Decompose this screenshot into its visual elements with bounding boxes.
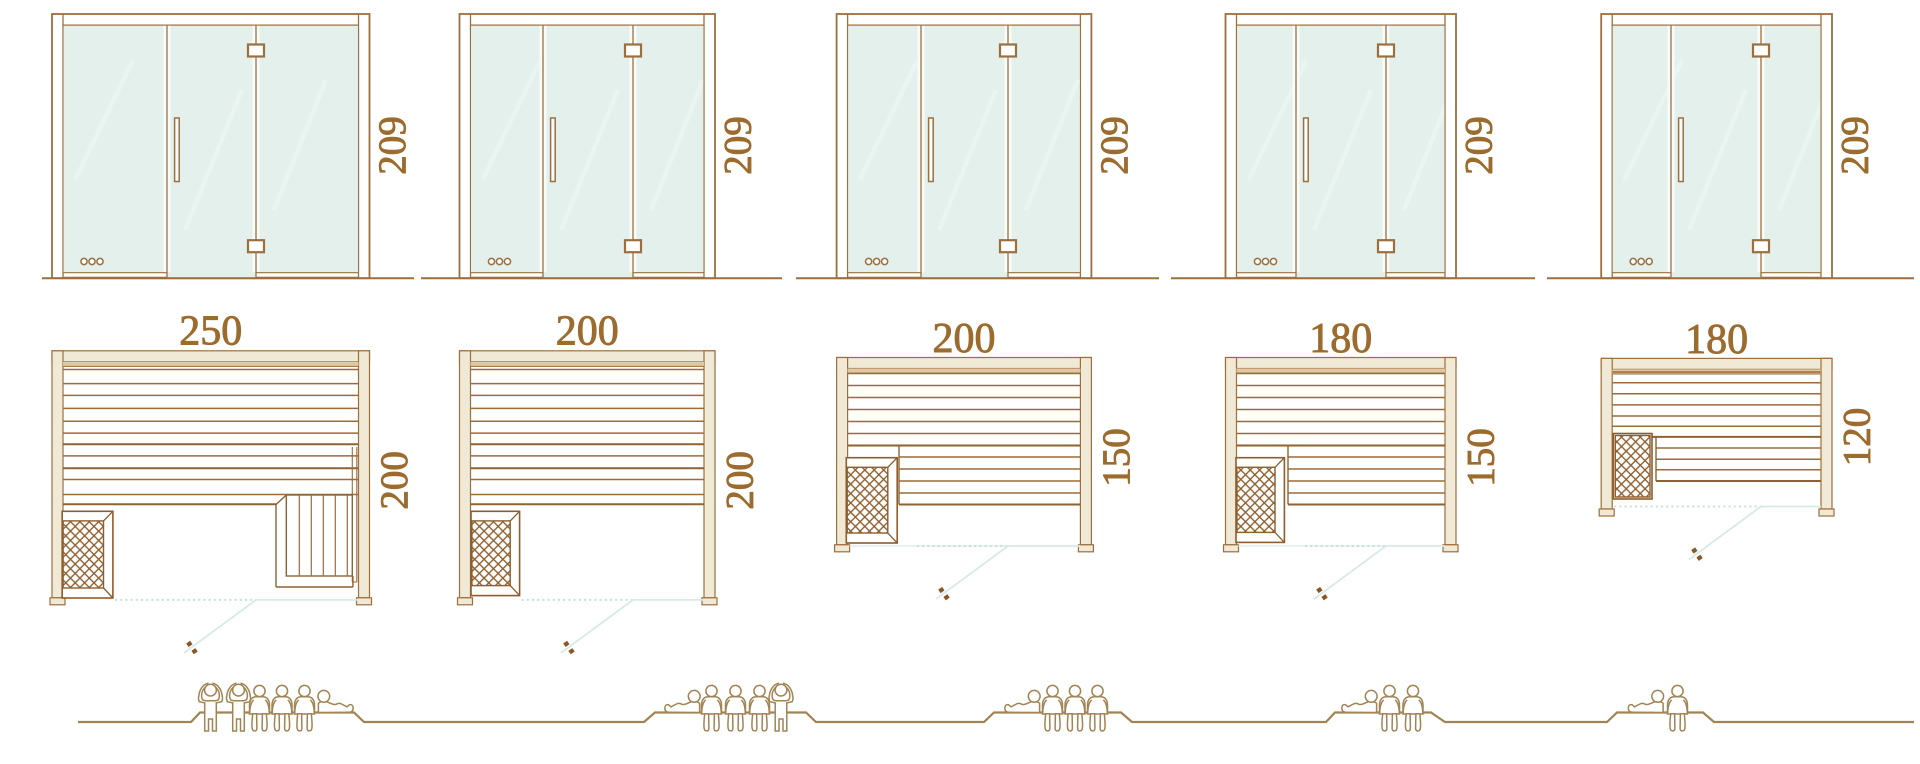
svg-text:200: 200: [556, 309, 619, 355]
svg-text:200: 200: [373, 451, 416, 510]
svg-text:150: 150: [1460, 428, 1503, 487]
svg-text:209: 209: [1834, 116, 1877, 175]
svg-text:180: 180: [1685, 317, 1748, 363]
svg-text:200: 200: [933, 316, 996, 362]
svg-text:250: 250: [179, 309, 242, 355]
svg-text:209: 209: [1458, 116, 1501, 175]
svg-text:120: 120: [1836, 408, 1879, 467]
svg-text:209: 209: [717, 116, 760, 175]
svg-text:200: 200: [719, 451, 762, 510]
svg-text:209: 209: [1093, 116, 1136, 175]
svg-text:180: 180: [1309, 316, 1372, 362]
svg-text:150: 150: [1095, 428, 1138, 487]
svg-text:209: 209: [371, 116, 414, 175]
